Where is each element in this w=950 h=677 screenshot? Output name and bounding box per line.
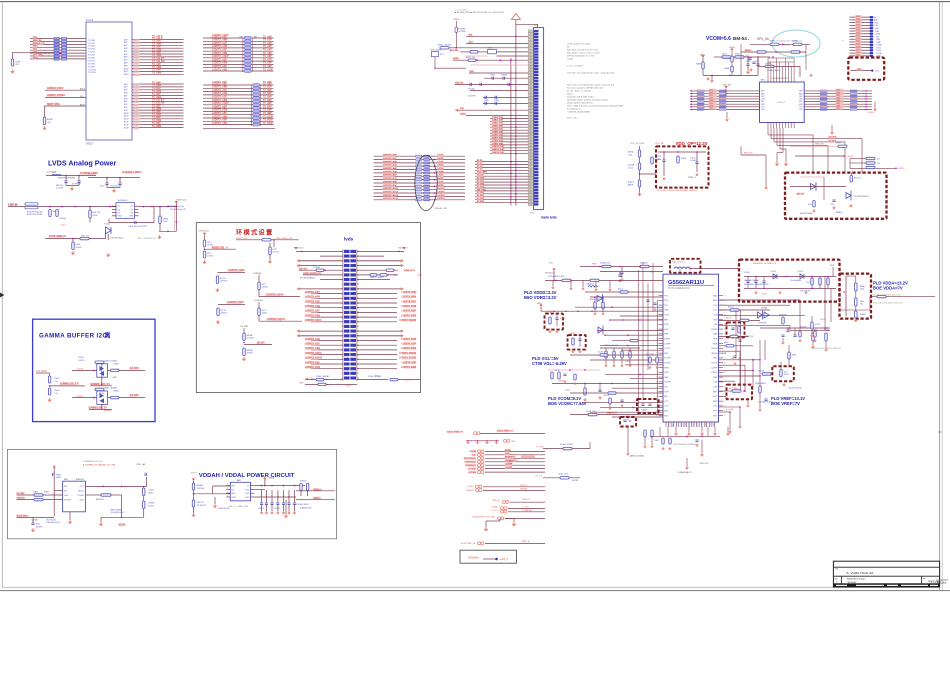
svg-text:4: 4 (251, 95, 252, 97)
svg-text:L/G2a BBG/2C4HC: L/G2a BBG/2C4HC (548, 276, 565, 278)
svg-text:35: 35 (724, 377, 726, 379)
svg-text:XRGB7: XRGB7 (520, 489, 528, 491)
svg-text:LVDSTX_A2P: LVDSTX_A2P (305, 310, 320, 313)
svg-text:B4BB: B4BB (771, 271, 777, 273)
svg-text:BRM_BN: BRM_BN (744, 153, 753, 155)
svg-text:B4P: B4P (761, 91, 765, 93)
svg-text:4R/Bb 4-B/4C: 4R/Bb 4-B/4C (767, 70, 780, 72)
svg-text:IL7: IL7 (130, 209, 133, 211)
svg-text:T_BRLL: T_BRLL (522, 506, 531, 508)
svg-text:A9P: A9P (124, 64, 128, 67)
svg-text:PT_Bb: PT_Bb (537, 446, 544, 448)
svg-text:A4pp?: A4pp? (628, 181, 635, 184)
svg-text:TX_B2P: TX_B2P (263, 90, 272, 92)
svg-text:1-BC: 1-BC (806, 282, 811, 284)
svg-text:39: 39 (724, 358, 726, 360)
svg-text:4: 4 (540, 140, 541, 142)
svg-text:TX_A0M: TX_A0M (152, 43, 161, 46)
svg-text:19: 19 (530, 84, 532, 86)
svg-text:EN: EN (714, 315, 717, 317)
svg-text:JADA: JADA (460, 113, 466, 116)
svg-text:C80R: C80R (494, 100, 500, 102)
svg-text:41: 41 (724, 348, 726, 350)
svg-text:B/4C2: B/4C2 (604, 395, 609, 397)
svg-text:PVL: PVL (664, 305, 669, 307)
svg-text:LVDSTX_ACKP: LVDSTX_ACKP (212, 102, 229, 105)
svg-text:LVDSTX_A0P: LVDSTX_A0P (383, 154, 397, 157)
svg-text:TX_ACLKP: TX_ACLKP (152, 57, 165, 60)
svg-text:IN1: IN1 (64, 486, 68, 488)
svg-text:LVDSTX_BCKM: LVDSTX_BCKM (399, 353, 416, 355)
svg-text:LVDSTX_A11P: LVDSTX_A11P (383, 190, 399, 193)
svg-text:TCON5: TCON5 (88, 55, 96, 57)
svg-text:BB4 L B4T4 B: BB4 L B4T4 B (673, 262, 686, 264)
svg-text:B0R4+: B0R4+ (628, 152, 635, 154)
svg-text:PG4: PG4 (875, 25, 879, 27)
svg-text:R4Bb: R4Bb (114, 363, 120, 365)
svg-text:B4C: B4C (712, 424, 714, 428)
svg-text:DR2/4n: DR2/4n (60, 218, 67, 220)
svg-text:LAB4_DAT: LAB4_DAT (492, 128, 504, 131)
svg-text:P/4TEJ GENERAT/R: P/4TEJ GENERAT/R (668, 287, 690, 290)
svg-text:XVCL3: XVCL3 (520, 485, 528, 487)
svg-text:BUN/PPST21SW: BUN/PPST21SW (27, 211, 43, 213)
svg-text:C4P2: C4P2 (709, 95, 713, 97)
svg-text:36: 36 (724, 372, 726, 374)
svg-text:RED 47k: RED 47k (81, 235, 89, 237)
svg-text:LVDSTX_A2P: LVDSTX_A2P (212, 96, 227, 99)
svg-text:B_CB0: B_CB0 (477, 178, 485, 180)
svg-text:B4C: B4C (700, 424, 702, 428)
svg-text:C4B4: C4B4 (565, 389, 570, 391)
svg-text:L/C012: L/C012 (438, 195, 446, 197)
svg-text:4: 4 (540, 110, 541, 112)
svg-text:+12V_IN: +12V_IN (8, 203, 18, 206)
svg-text:INL: INL (64, 491, 68, 493)
svg-text:38: 38 (724, 362, 726, 364)
svg-text:* (B4B (B,4b/44B B(BB): * (B4B (B,4b/44B B(BB) (567, 112, 590, 114)
svg-text:IL7: IL7 (130, 206, 133, 208)
svg-text:yeGC_P: yeGC_P (500, 559, 509, 561)
svg-text:B1P: B1P (124, 87, 128, 89)
svg-text:L5A AT-u0: L5A AT-u0 (586, 282, 595, 285)
svg-text:4B/4C: 4B/4C (560, 318, 566, 320)
svg-text:LVDSTX_A2P: LVDSTX_A2P (212, 49, 227, 52)
svg-text:BE + GROUND (3): BE + GROUND (3) (138, 238, 156, 240)
svg-text:4J/4HC: 4J/4HC (36, 526, 43, 528)
svg-text:BYTVB: BYTVB (64, 500, 71, 502)
svg-text:L/C03: L/C03 (438, 165, 445, 167)
svg-text:T_BRLLA: T_BRLLA (522, 509, 532, 512)
svg-text:TX_B9P: TX_B9P (263, 113, 272, 115)
svg-text:LVDSTX_B0P: LVDSTX_B0P (212, 82, 227, 84)
svg-text:LVDSTX_B2M: LVDSTX_B2M (401, 348, 416, 350)
svg-text:4Tk: 4Tk (877, 158, 880, 160)
svg-text:V33-Panel: V33-Panel (398, 248, 408, 250)
svg-text:49: 49 (530, 172, 532, 174)
svg-text:TX_A0P: TX_A0P (152, 40, 161, 43)
svg-text:LVDSTX_A4P: LVDSTX_A4P (383, 167, 397, 170)
svg-text:M20 A --- M2: M20 A --- M2 (435, 207, 448, 210)
svg-text:T-100: T-100 (60, 224, 66, 226)
svg-text:4T4R: 4T4R (815, 324, 820, 326)
svg-text:L/D2: L/D2 (52, 172, 57, 174)
svg-text:ALC-SEL: ALC-SEL (450, 49, 460, 52)
svg-text:GN2: GN2 (232, 497, 237, 499)
svg-text:C4C2: C4C2 (820, 319, 825, 321)
svg-text:B/R4b2: B/R4b2 (197, 485, 205, 487)
svg-text:GPH4: GPH4 (346, 385, 352, 387)
svg-text:离: 离 (105, 332, 111, 340)
svg-text:LVDSTX_A4P: LVDSTX_A4P (212, 65, 227, 68)
svg-text:1: 1 (251, 85, 252, 87)
svg-text:BOE VDDA=7V: BOE VDDA=7V (873, 285, 903, 290)
svg-text:VDD_OP=2.4V(1Z)-VM4-BZRBET+RMZ: VDD_OP=2.4V(1Z)-VM4-BZRBET+RMZG] (657, 190, 697, 192)
svg-text:4: 4 (227, 496, 228, 498)
svg-text:LVDSTX_B3P: LVDSTX_B3P (401, 362, 416, 364)
svg-text:58: 58 (530, 198, 532, 200)
svg-text:LAB8_DAT: LAB8_DAT (492, 139, 504, 142)
svg-text:LVDSTX_B2P: LVDSTX_B2P (401, 344, 416, 346)
svg-text:P/GB+_4R0AC: P/GB+_4R0AC (316, 375, 330, 378)
svg-text:C684: C684 (490, 75, 496, 77)
svg-text:CORP: CORP (711, 367, 718, 369)
svg-text:59: 59 (530, 201, 532, 203)
svg-text:C4B2: C4B2 (654, 440, 659, 442)
svg-text:B44C: B44C (724, 342, 729, 344)
svg-text:LVDSTX_ACKP: LVDSTX_ACKP (305, 352, 322, 355)
svg-text:4: 4 (540, 37, 541, 39)
svg-text:B/TGB A/GBK/4Z: B/TGB A/GBK/4Z (300, 277, 316, 280)
svg-text:47uF/16V: 47uF/16V (72, 184, 81, 186)
svg-text:J4/R: J4/R (113, 377, 118, 379)
svg-text:SEL/VP: SEL/VP (522, 499, 530, 501)
svg-text:B8P: B8P (124, 107, 128, 109)
svg-text:33: 33 (530, 125, 532, 127)
svg-text:LAB2_DAT: LAB2_DAT (492, 122, 504, 125)
svg-text:V33-Panel: V33-Panel (545, 273, 555, 275)
svg-text:VGPM: VGPM (711, 329, 718, 331)
svg-text:4: 4 (540, 154, 541, 156)
svg-text:LVDSTX_A2M: LVDSTX_A2M (212, 52, 227, 55)
svg-text:IL1: IL1 (118, 206, 121, 208)
svg-text:BUMPPOH/PPMW: BUMPPOH/PPMW (58, 177, 75, 179)
svg-text:B0BB: B0BB (860, 314, 866, 316)
svg-text:LVDSTX_A4P: LVDSTX_A4P (212, 112, 227, 115)
svg-text:B_YB0: B_YB0 (477, 192, 485, 194)
svg-text:L/C07: L/C07 (438, 178, 445, 180)
svg-text:L/C06: L/C06 (438, 175, 445, 177)
svg-text:R4B2: R4B2 (114, 391, 120, 393)
svg-text:VG2: VG2 (245, 489, 250, 491)
svg-text:(4/4k): (4/4k) (149, 505, 154, 507)
svg-text:OUT: OUT (664, 315, 669, 317)
svg-text:TX_A4P: TX_A4P (152, 69, 161, 72)
svg-text:13: 13 (530, 66, 532, 68)
svg-text:4: 4 (540, 169, 541, 171)
svg-text:TX_A5P: TX_A5P (263, 52, 272, 55)
svg-text:C56: C56 (755, 61, 760, 63)
svg-text:A06BT: A06BT (798, 270, 805, 273)
svg-text:C4457: C4457 (149, 490, 156, 492)
svg-text:2: 2 (227, 488, 228, 490)
svg-text:B4u(4): B4u(4) (762, 293, 768, 295)
svg-text:L/C011: L/C011 (438, 191, 446, 193)
svg-text:B4C: B4C (708, 424, 710, 428)
svg-text:A62: A62 (237, 479, 242, 482)
svg-text:LVDSTX_BCKM: LVDSTX_BCKM (399, 358, 416, 360)
svg-text:4: 4 (540, 198, 541, 200)
svg-text:4/4BB(B4A/C2: 4/4BB(B4A/C2 (678, 471, 692, 474)
svg-text:TX_A1P: TX_A1P (152, 46, 161, 49)
svg-text:B_YB2: B_YB2 (477, 198, 485, 200)
svg-text:XA0: XA0 (713, 333, 718, 336)
svg-text:4/R/R2: 4/R/R2 (247, 353, 254, 355)
svg-text:48: 48 (530, 169, 532, 171)
svg-text:LVDSTX_A3M: LVDSTX_A3M (212, 109, 227, 112)
svg-text:TCON7: TCON7 (88, 61, 96, 63)
svg-text:AT30.7: AT30.7 (86, 143, 94, 146)
svg-text:TX_B11P: TX_B11P (263, 120, 273, 122)
svg-text:LVDSTX_A2M: LVDSTX_A2M (305, 347, 320, 350)
svg-text:B6L: B6L (232, 493, 236, 495)
svg-text:C/B4C4: C/B4C4 (258, 508, 264, 510)
svg-text:DRVP: DRVP (664, 339, 671, 341)
svg-text:A06: A06 (874, 19, 877, 22)
svg-text:TX_A2M: TX_A2M (152, 54, 161, 57)
svg-text:7: 7 (530, 48, 531, 50)
svg-text:B40 2B/4C 4/T0/4C B14C 2C4C: B40 2B/4C 4/T0/4C B14C 2C4C (567, 50, 599, 52)
svg-text:LVDSTX_A1M: LVDSTX_A1M (212, 92, 227, 95)
svg-text:A-IN TSAV_IN: A-IN TSAV_IN (461, 542, 475, 545)
svg-text:R63 224: R63 224 (93, 212, 101, 214)
svg-text:B4C4: B4C4 (618, 288, 623, 290)
svg-text:7: 7 (251, 105, 252, 107)
svg-text:B5L44: B5L44 (726, 318, 733, 320)
svg-text:LVDSTX_A2P: LVDSTX_A2P (305, 343, 320, 346)
svg-text:OUT: OUT (713, 396, 718, 398)
svg-text:J4R07+ MB/4R: J4R07+ MB/4R (370, 277, 384, 279)
svg-text:B_4C4B: B_4C4B (726, 409, 734, 411)
svg-text:LVDSTX_A1M: LVDSTX_A1M (305, 338, 320, 341)
svg-text:GNC: GNC (471, 455, 476, 457)
svg-text:28: 28 (530, 110, 532, 112)
svg-text:USB-A-EFE-T132 GND: USB-A-EFE-T132 GND (472, 516, 495, 519)
svg-text:22: 22 (530, 92, 532, 94)
svg-text:LVDSTX_A8P: LVDSTX_A8P (383, 180, 397, 183)
svg-text:TX_B1P: TX_B1P (152, 88, 161, 90)
svg-text:B5R44R: B5R44R (640, 263, 648, 265)
svg-text:J/G5989: J/G5989 (468, 95, 476, 97)
svg-text:LVDSTX_A4M: LVDSTX_A4M (212, 115, 227, 118)
svg-text:4C.4k: 4C.4k (628, 167, 633, 169)
svg-text:TCON0: TCON0 (88, 40, 96, 42)
svg-text:B/4C4: B/4C4 (728, 306, 734, 308)
svg-text:+12VBB: +12VBB (468, 472, 477, 474)
svg-text:-B.4L: -B.4L (628, 154, 634, 156)
svg-text:L/B4C: L/B4C (836, 143, 842, 145)
svg-text:GAMMA BUFFER I2C: GAMMA BUFFER I2C (39, 332, 108, 339)
svg-text:4AND/C4H4(B): 4AND/C4H4(B) (630, 455, 645, 458)
svg-text:5: 5 (530, 43, 531, 45)
svg-text:35: 35 (530, 131, 532, 133)
svg-text:TSAV_A: TSAV_A (521, 540, 530, 543)
svg-text:LVDSTX_A3M: LVDSTX_A3M (305, 366, 320, 369)
svg-text:52: 52 (724, 295, 726, 297)
svg-text:4T4A_C2R: 4T4A_C2R (586, 410, 596, 413)
svg-text:45: 45 (530, 160, 532, 162)
svg-text:B13P: B13P (124, 122, 129, 124)
svg-text:TX_B3P: TX_B3P (152, 106, 161, 108)
svg-text:B2P: B2P (799, 101, 803, 103)
svg-text:BOE VCOM=77.84V: BOE VCOM=77.84V (548, 401, 587, 406)
svg-text:CT08 VGL=-6.29V: CT08 VGL=-6.29V (532, 361, 567, 366)
svg-text:R4G/B: R4G/B (725, 58, 731, 60)
svg-text:LVDSTX_BCKM: LVDSTX_BCKM (399, 320, 416, 322)
svg-text:LAB9_DAT: LAB9_DAT (492, 142, 504, 145)
svg-text:B_CB1: B_CB1 (477, 181, 485, 183)
svg-text:PV7: PV7 (664, 300, 669, 302)
svg-text:Rev: Rev (923, 578, 926, 580)
svg-text:■ B/G2B5 (TBD) ■ B4/T/4T B/T0B: ■ B/G2B5 (TBD) ■ B4/T/4T B/T0B5 C0/_4p1 … (455, 11, 504, 14)
svg-text:LVDSTX_A1P: LVDSTX_A1P (212, 89, 227, 92)
svg-text:BBC 4r. +4/BB1 4/BB: BBC 4r. +4/BB1 4/BB (229, 506, 249, 508)
svg-text:B4/L: B4/L (36, 524, 41, 526)
svg-text:4R0K: 4R0K (792, 355, 797, 357)
svg-text:VDDH: VDDH (191, 473, 197, 475)
svg-text:BFGL_NJ: BFGL_NJ (466, 57, 475, 59)
svg-text:LVDSTX_B1M: LVDSTX_B1M (401, 339, 416, 341)
svg-text:EN: EN (664, 396, 667, 398)
svg-text:11: 11 (250, 118, 252, 120)
svg-text:(B)4B/4C/B(B): (B)4B/4C/B(B) (800, 213, 813, 215)
svg-text:(n-7k/R): (n-7k/R) (247, 338, 255, 340)
svg-text:B12P: B12P (124, 119, 129, 121)
svg-text:GND: GND (505, 453, 510, 455)
svg-text:A6P: A6P (124, 56, 128, 59)
svg-text:C685E: C685E (501, 75, 508, 77)
svg-text:+4/BB2/BT/4C: +4/BB2/BT/4C (299, 508, 312, 510)
svg-text:TCON10: TCON10 (88, 69, 97, 71)
svg-text:BRT: BRT (713, 391, 718, 393)
svg-text:B4: B4 (874, 17, 876, 19)
svg-text:1/2a(4p A0BBL: 1/2a(4p A0BBL (790, 279, 801, 282)
svg-text:B_CB2: B_CB2 (477, 183, 485, 185)
svg-text:GAMMA_AVC_EN: GAMMA_AVC_EN (91, 383, 111, 386)
svg-text:TX_B0M: TX_B0M (152, 85, 161, 87)
svg-text:2/BBA4A00Y/N_(B.)]: 2/BBA4A00Y/N_(B.)] (83, 460, 103, 463)
svg-text:BM-54 .: BM-54 . (733, 36, 749, 41)
svg-text:B) C4se) supply for 4B0BB (4b: B) C4se) supply for 4B0BB (4b4c/4e) (567, 87, 603, 90)
svg-text:R4d/L: R4d/L (56, 474, 62, 476)
svg-text:PT_C4: PT_C4 (535, 476, 543, 478)
svg-text:a select-0Z: a select-0Z (780, 44, 791, 47)
svg-text:R6-8: R6-8 (76, 244, 81, 246)
svg-text:B/G2B5: B/G2B5 (459, 28, 467, 30)
svg-text:11: 11 (530, 60, 532, 62)
svg-text:31: 31 (530, 119, 532, 121)
svg-text:GND: GND (511, 441, 516, 443)
svg-text:15: 15 (342, 284, 344, 286)
svg-text:LVDSTX_B2M: LVDSTX_B2M (401, 315, 416, 317)
svg-text:B)(P4(4(e (4(44e p(4b(4y b(4: B)(P4(4(e (4(44e p(4b(4y b(4e(4(4e (4(p4… (567, 100, 608, 102)
svg-text:R4E7: R4E7 (55, 378, 61, 380)
svg-text:2/4T01: 2/4T01 (78, 360, 85, 362)
svg-text:B/4CBT: B/4CBT (800, 327, 807, 329)
svg-text:B40 2B/4C C14C2 4C4C2 C14C2: B40 2B/4C C14C2 4C4C2 C14C2 (567, 53, 601, 55)
svg-text:4/4BB: 4/4BB (625, 361, 631, 363)
svg-text:30: 30 (530, 116, 532, 118)
svg-text:T/1-B4T4C: T/1-B4T4C (197, 505, 207, 507)
svg-text:LVDSTX_A5M: LVDSTX_A5M (212, 122, 227, 125)
svg-text:L/B5R: L/B5R (558, 381, 564, 383)
svg-text:BOE VREF=7V: BOE VREF=7V (771, 401, 800, 406)
svg-text:BS2: BS2 (664, 415, 669, 417)
svg-text:C1171: C1171 (690, 157, 697, 159)
svg-text:LVDSTX_A0M: LVDSTX_A0M (212, 86, 227, 89)
svg-text:C4P: C4P (799, 96, 803, 98)
svg-text:LVDSTX_A6P: LVDSTX_A6P (383, 174, 397, 177)
svg-text:J7GB: J7GB (875, 34, 880, 36)
svg-text:RAMB: RAMB (469, 450, 476, 453)
svg-text:A10P: A10P (124, 67, 129, 70)
svg-text:TX_B3P: TX_B3P (263, 93, 272, 95)
svg-text:LAB11_DAT: LAB11_DAT (492, 148, 505, 151)
svg-text:9: 9 (530, 54, 531, 56)
svg-text:51: 51 (530, 178, 532, 180)
svg-text:VDD_OP=12.2V: VDD_OP=12.2V (676, 141, 708, 146)
svg-text:55: 55 (530, 190, 532, 192)
svg-text:TX_B10P: TX_B10P (263, 116, 273, 118)
svg-text:B(4T = BC: B(4T = BC (567, 118, 578, 120)
svg-text:GGG 40/80) S120 2A04: GGG 40/80) S120 2A04 (567, 43, 591, 46)
svg-text:B5P: B5P (124, 98, 128, 100)
svg-text:27: 27 (724, 415, 726, 417)
svg-text:A12P: A12P (124, 73, 129, 76)
svg-text:VG544: VG544 (761, 308, 768, 310)
svg-text:VG2: VG2 (245, 493, 250, 495)
svg-text:4B4C(4C2: 4B4C(4C2 (700, 463, 709, 465)
svg-text:4-5/4R0: 4-5/4R0 (459, 31, 467, 33)
svg-text:LVDSTX_A9P: LVDSTX_A9P (383, 184, 397, 187)
svg-text:100u/10V: 100u/10V (110, 185, 119, 187)
svg-text:+4: +4 (842, 40, 844, 42)
svg-text:LVDSTX_A12P: LVDSTX_A12P (383, 194, 399, 197)
svg-text:B4_B4BB: B4_B4BB (729, 388, 738, 390)
svg-text:41: 41 (530, 148, 532, 150)
svg-text:B3P: B3P (124, 93, 128, 95)
svg-text:R4B1: R4B1 (33, 491, 39, 493)
svg-text:BS1: BS1 (713, 300, 718, 302)
svg-text:BC: BC (567, 47, 570, 49)
svg-text:3: 3 (227, 492, 228, 494)
svg-text:10u/BC: 10u/BC (690, 160, 697, 162)
svg-text:LVDSTX_A2M: LVDSTX_A2M (212, 99, 227, 102)
svg-text:CT2: CT2 (713, 305, 718, 307)
svg-text:VG2: VG2 (245, 497, 250, 499)
svg-text:TRABL: TRABL (792, 40, 798, 43)
svg-text:4) 4(B/4e(y 4): 4) 4(B/4e(y 4) (567, 109, 581, 111)
svg-text:7G7B: 7G7B (876, 53, 882, 55)
svg-text:29: 29 (530, 113, 532, 115)
svg-text:4BB-4B4/B-B-B T/4BB/B4TB4B4/4T: 4BB-4B4/B-B-B T/4BB/B4TB4B4/4T (811, 348, 842, 350)
svg-text:TX_B2M: TX_B2M (152, 97, 161, 99)
svg-text:main lvds: main lvds (541, 215, 557, 219)
svg-text:T/GC/8k: T/GC/8k (197, 488, 204, 490)
svg-text:A1P: A1P (124, 41, 128, 44)
svg-text:AB2R: AB2R (628, 183, 634, 186)
svg-text:PA4B: PA4B (725, 67, 730, 70)
